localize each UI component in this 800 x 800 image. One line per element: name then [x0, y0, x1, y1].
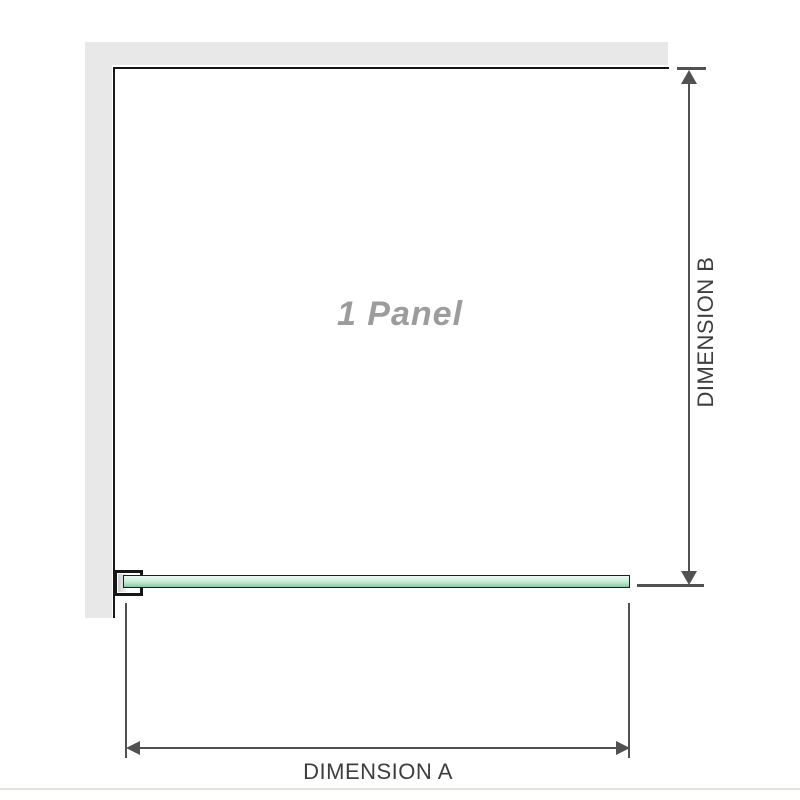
dimension-a-extension-right: [628, 603, 630, 758]
wall-left: [85, 42, 112, 618]
panel-outline-top: [113, 67, 669, 69]
dimension-b-label: DIMENSION B: [693, 182, 719, 482]
dimension-a-label: DIMENSION A: [228, 759, 528, 785]
dimension-b-arrow-down-icon: [681, 571, 697, 585]
image-bottom-edge-line: [0, 788, 800, 790]
panel-outline-left: [113, 67, 115, 618]
glass-panel-bar: [123, 575, 630, 588]
dimension-a-line: [131, 747, 625, 749]
wall-top: [85, 42, 668, 65]
diagram-canvas: 1 Panel DIMENSION B DIMENSION A: [0, 0, 800, 800]
dimension-a-extension-left: [125, 603, 127, 758]
dimension-b-cap-bottom: [637, 584, 704, 587]
dimension-a-arrow-right-icon: [616, 741, 630, 755]
dimension-b-line: [688, 72, 690, 576]
panel-count-label: 1 Panel: [250, 295, 550, 334]
